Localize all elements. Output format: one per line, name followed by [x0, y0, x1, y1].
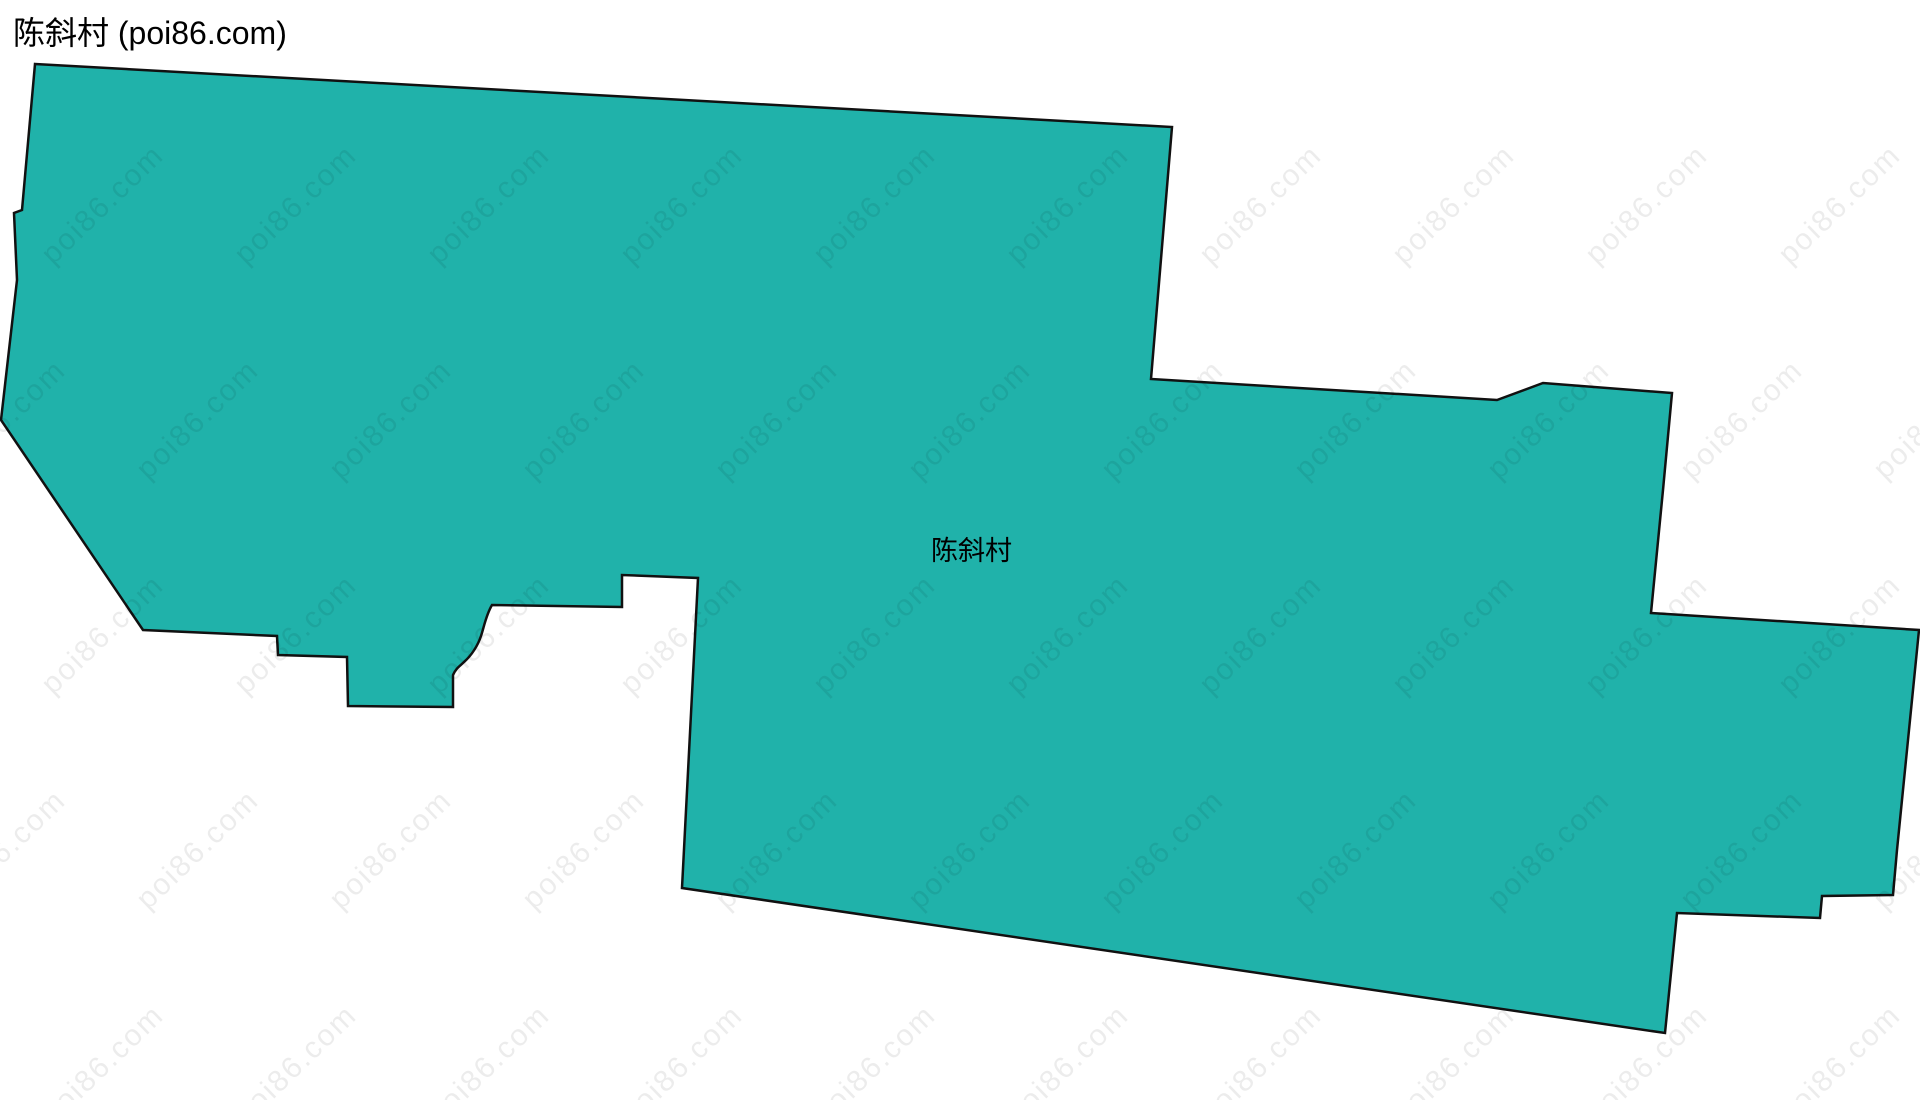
region-label: 陈斜村	[931, 529, 1012, 568]
map-canvas: poi86.compoi86.compoi86.compoi86.compoi8…	[0, 0, 1920, 1100]
page-title: 陈斜村 (poi86.com)	[13, 8, 287, 54]
